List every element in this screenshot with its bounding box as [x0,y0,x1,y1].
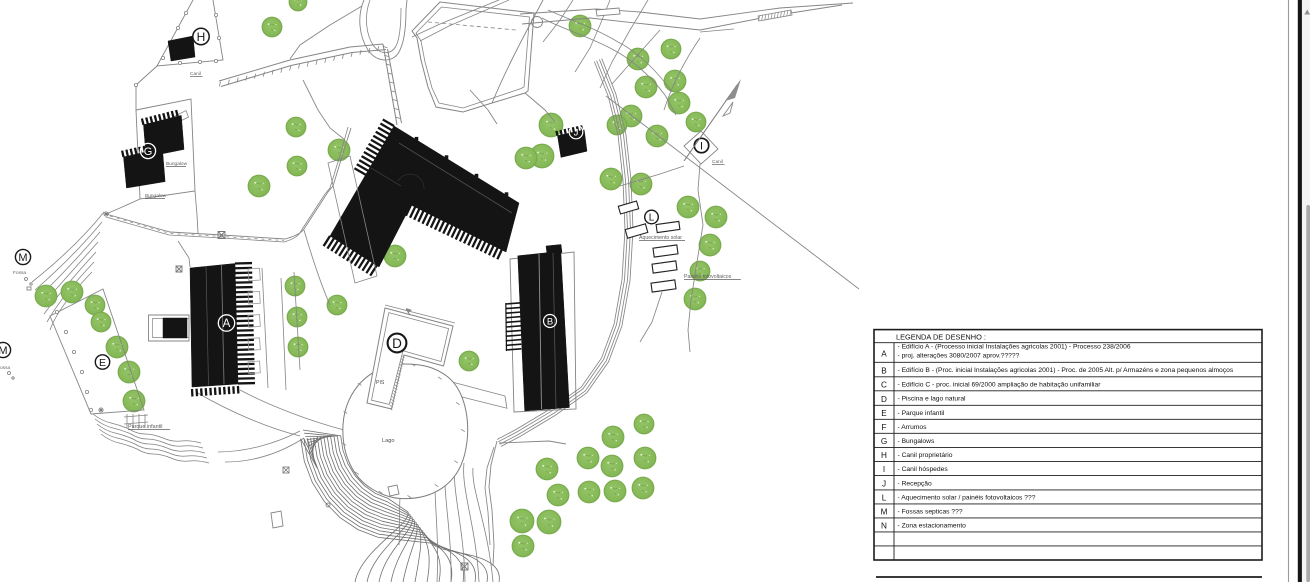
svg-text:H: H [197,30,206,44]
svg-text:E: E [881,409,887,418]
svg-text:Aquecimento solar: Aquecimento solar [639,235,682,241]
svg-text:I: I [883,465,885,474]
svg-text:B: B [881,366,887,375]
svg-text:- Edifício A - (Processo inici: - Edifício A - (Processo inicial Instala… [898,344,1131,351]
svg-text:Bungalow: Bungalow [166,161,188,167]
svg-text:- Parque infantil: - Parque infantil [898,410,945,417]
svg-text:- Recepção: - Recepção [898,480,932,487]
svg-text:N: N [881,522,887,531]
svg-text:- Zona estacionamento: - Zona estacionamento [898,523,967,530]
svg-text:- Piscina e lago natural: - Piscina e lago natural [898,396,967,403]
svg-text:D: D [392,336,402,351]
svg-text:- Aquecimento solar / painéis: - Aquecimento solar / painéis fotovoltai… [898,495,1036,502]
svg-text:Fossa: Fossa [13,270,26,276]
svg-text:M: M [18,252,27,264]
svg-text:LEGENDA DE DESENHO :: LEGENDA DE DESENHO : [896,333,986,342]
svg-text:C: C [881,381,887,390]
svg-text:A: A [881,349,887,358]
svg-text:- Bungalows: - Bungalows [898,438,935,445]
svg-text:J: J [574,127,579,138]
svg-text:Canil: Canil [712,159,723,165]
svg-text:G: G [881,437,887,446]
svg-text:- proj. alterações 3080/2007: - proj. alterações 3080/2007 aprov.????? [898,353,1020,360]
svg-text:Painéis fotovoltaicos: Painéis fotovoltaicos [684,274,732,280]
svg-text:- Arrumos: - Arrumos [898,424,928,431]
svg-text:G: G [144,146,153,158]
svg-text:Bungalow: Bungalow [145,193,167,199]
svg-text:Canil: Canil [190,71,201,77]
svg-text:- Fossas septicas ???: - Fossas septicas ??? [898,509,963,516]
svg-text:B: B [547,316,553,327]
svg-text:ossa: ossa [0,366,10,371]
svg-text:E: E [99,357,106,369]
svg-text:Lago: Lago [382,438,394,444]
svg-text:- Edifício C - proc. inicial 6: - Edifício C - proc. inicial 69/2000 amp… [898,382,1102,389]
svg-text:Parque infantil: Parque infantil [128,424,162,430]
svg-text:I: I [700,141,703,153]
svg-text:A: A [223,318,231,330]
svg-text:PIS: PIS [376,380,385,386]
svg-text:L: L [882,494,887,503]
svg-text:- Canil proprietário: - Canil proprietário [898,452,953,459]
svg-text:J: J [882,479,886,488]
svg-text:F: F [881,423,886,432]
svg-text:- Canil hóspedes: - Canil hóspedes [898,466,949,473]
svg-text:L: L [649,213,655,224]
svg-text:M: M [0,345,8,357]
svg-text:H: H [881,451,887,460]
svg-text:D: D [881,395,887,404]
svg-text:- Edifício B - (Proc. inicial: - Edifício B - (Proc. inicial Instalaçõe… [898,367,1234,374]
svg-text:M: M [881,508,888,517]
